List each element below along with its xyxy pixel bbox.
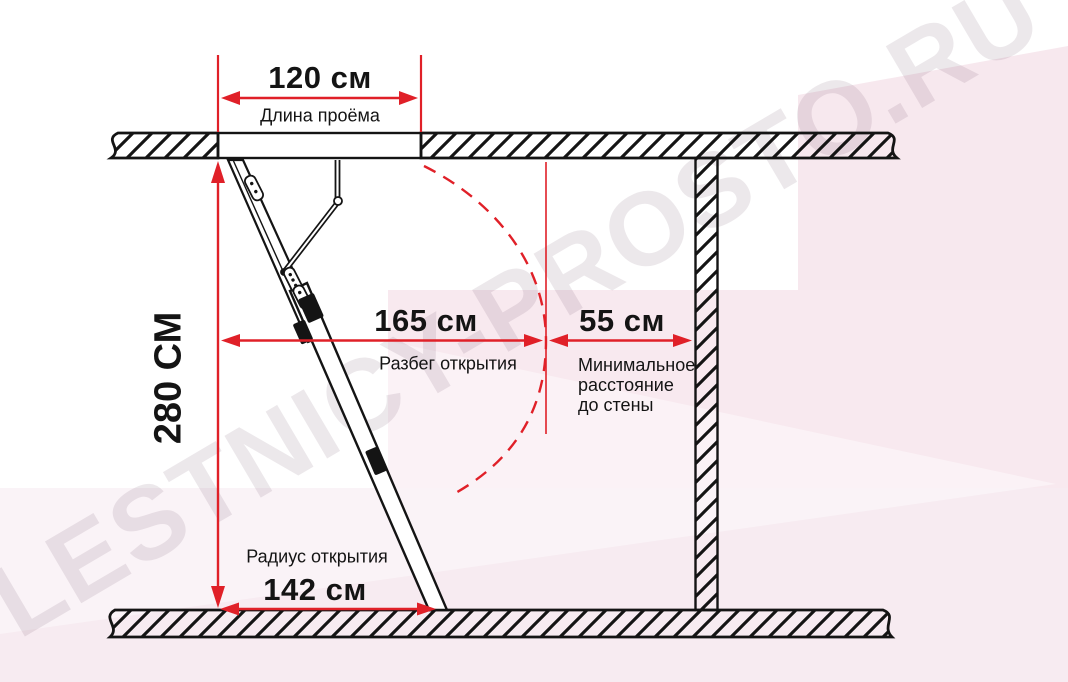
- floor-slab: [110, 610, 892, 637]
- dim-opening-length-value: 120 см: [268, 60, 372, 96]
- ceiling-slab-right: [421, 133, 897, 158]
- dim-wall-distance-value: 55 см: [579, 303, 665, 339]
- ceiling-opening-frame: [218, 133, 421, 158]
- dim-opening-span-label: Разбег открытия: [379, 354, 517, 375]
- ladder-strut-joint-top: [334, 197, 342, 205]
- diagram-stage: LESTNICY-PROSTO.RU: [0, 0, 1068, 682]
- dim-ceiling-height-value: 280 СМ: [148, 312, 191, 445]
- ceiling-slab-left: [111, 133, 218, 158]
- dim-opening-radius-value: 142 см: [263, 572, 367, 608]
- arrowhead-right: [399, 91, 418, 105]
- dim-opening-length-label: Длина проёма: [260, 106, 380, 127]
- arrowhead-right: [673, 334, 692, 347]
- ladder-hanger-rod: [336, 160, 340, 198]
- attic-ladder: [228, 160, 447, 610]
- arrowhead-left: [549, 334, 568, 347]
- dim-wall-distance-label: Минимальное расстояние до стены: [578, 355, 695, 415]
- wall-section: [696, 158, 718, 610]
- arrowhead-left: [221, 91, 240, 105]
- dim-opening-radius-label: Радиус открытия: [246, 547, 388, 568]
- arrowhead-right: [524, 334, 543, 347]
- ladder-strut-highlight: [284, 202, 338, 272]
- dim-opening-span-value: 165 см: [374, 303, 478, 339]
- ceiling-slab: [111, 133, 897, 158]
- arrowhead-left: [221, 334, 240, 347]
- arrowhead-up: [211, 161, 225, 183]
- dim-ceiling-height: [211, 161, 225, 608]
- arrowhead-down: [211, 586, 225, 608]
